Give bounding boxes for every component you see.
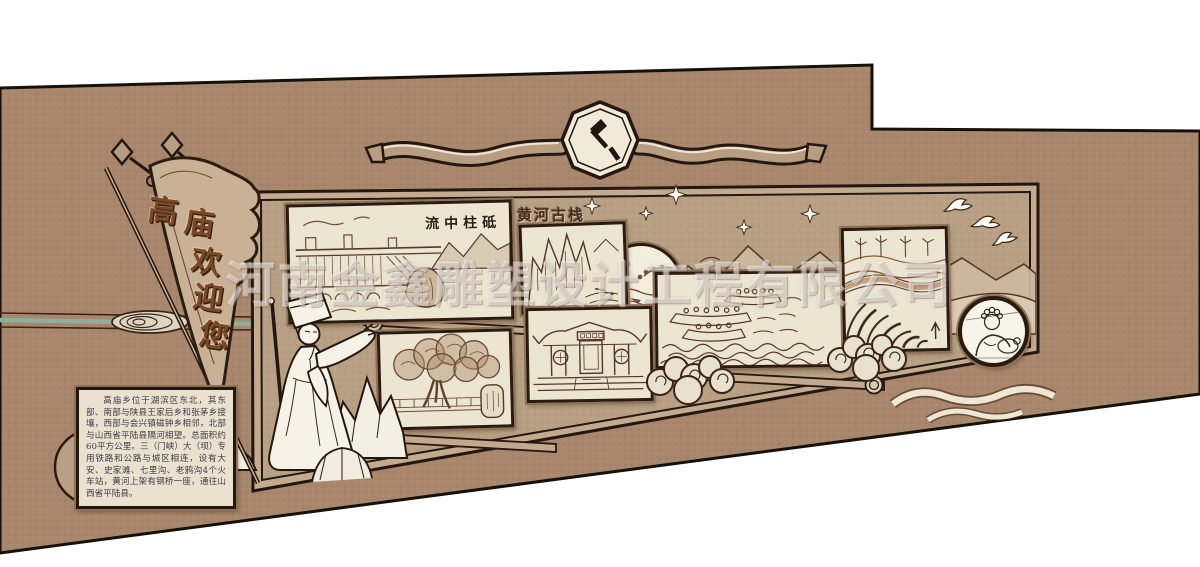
flag-char-5: 您 [197, 320, 231, 354]
scroll-rod-under-boats [646, 369, 884, 394]
company-watermark: 河南金鑫雕塑设计工程有限公司 [226, 246, 1006, 317]
ribbon-banner [366, 143, 826, 162]
flag-char-3: 欢 [189, 246, 223, 280]
hammer-sickle-icon [583, 119, 621, 161]
scroll-rod-under-tree [348, 430, 556, 453]
cultural-wall-design: 流中柱砥 黄河古栈 [0, 0, 1200, 567]
dove-icons [944, 199, 1018, 246]
temple-sketch [528, 309, 651, 400]
intro-board: 高庙乡位于湖滨区东北，其东部、南部与陕县王家后乡和张茅乡接壤，西部与会兴镇磁钟乡… [76, 387, 236, 509]
party-emblem-octagon [562, 102, 638, 178]
spearhead-icon [162, 133, 182, 157]
flag-char-1: 高 [146, 195, 180, 229]
intro-text: 高庙乡位于湖滨区东北，其东部、南部与陕县王家后乡和张茅乡接壤，西部与会兴镇磁钟乡… [86, 396, 226, 500]
frame-tree-picture [377, 328, 515, 430]
wave-clouds [893, 389, 1054, 420]
dam-caption: 流中柱砥 [425, 212, 501, 234]
flag-char-4: 迎 [191, 282, 225, 316]
tree-sketch [380, 331, 511, 427]
flag-char-2: 庙 [182, 207, 216, 241]
gorge-title: 黄河古栈 [517, 204, 585, 225]
spearhead-icon [112, 140, 132, 164]
frame-temple-picture [525, 306, 654, 403]
